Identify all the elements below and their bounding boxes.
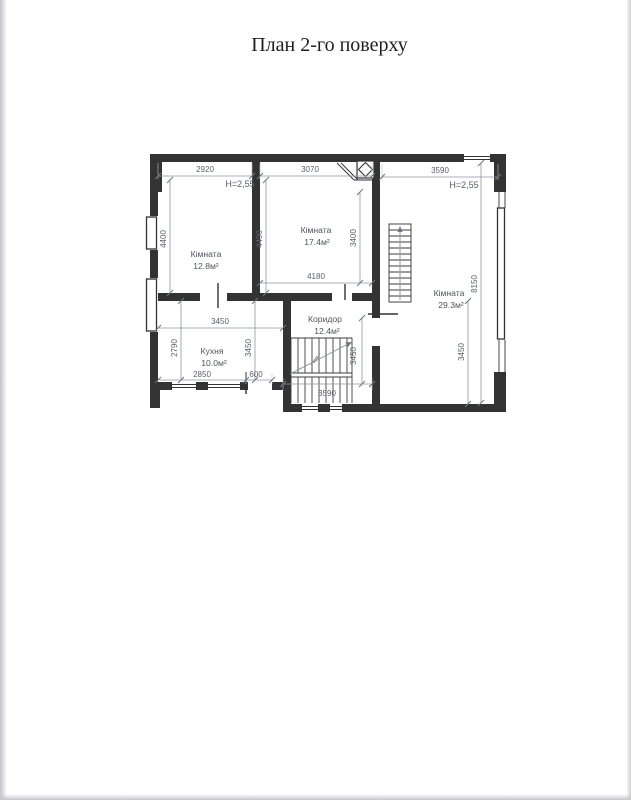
dim-stairs-width-bottom: 3590 — [318, 389, 336, 398]
dim-room1-top: 2920 — [196, 165, 214, 174]
column — [318, 404, 330, 412]
corner-top-right — [494, 154, 506, 192]
corridor-name-label: Коридор — [308, 314, 342, 324]
room1-name-label: Кімната — [191, 249, 222, 259]
dim-kitchen-width-bottom: 2850 — [193, 370, 211, 379]
corner-bottom-left — [150, 390, 160, 408]
photo-edge-right — [626, 0, 631, 800]
dim-kitchen-door-width: 600 — [249, 370, 263, 379]
dim-kitchen-height: 2790 — [170, 339, 179, 357]
stairs-ladder-room3 — [389, 224, 411, 302]
dim-corridor-height: 3450 — [457, 343, 466, 361]
dim-kitchen-inner-height: 3450 — [244, 339, 253, 357]
kitchen-area-label: 10.0м² — [201, 358, 227, 368]
room2-name-label: Кімната — [301, 225, 332, 235]
dim-stairs-height: 3450 — [349, 347, 358, 365]
kitchen-name-label: Кухня — [201, 346, 224, 356]
window-right — [498, 208, 505, 339]
window-left-1 — [147, 217, 157, 249]
room3-name-label: Кімната — [434, 288, 465, 298]
room3-area-label: 29.3м² — [438, 300, 464, 310]
window-top — [464, 154, 490, 162]
dim-room3-height: 8150 — [470, 275, 479, 293]
height-label-left: H=2,55 — [225, 179, 254, 189]
stair-walk-line — [290, 342, 352, 374]
dim-room2-height: 4400 — [255, 230, 264, 248]
page-title: План 2-го поверху — [28, 34, 631, 57]
column — [196, 382, 208, 390]
dim-room2-top: 3070 — [301, 165, 319, 174]
floor-plan-drawing: 2920 3070 3590 H=2,55 H=2,55 4400 4400 3… — [140, 140, 520, 425]
window-left-2 — [147, 279, 157, 331]
dim-room3-top: 3590 — [431, 166, 449, 175]
photo-edge-bottom — [0, 794, 631, 800]
photo-edge-left — [0, 0, 7, 800]
corridor-area-label: 12.4м² — [314, 326, 340, 336]
photo-page: План 2-го поверху — [0, 0, 631, 800]
room2-area-label: 17.4м² — [304, 237, 330, 247]
dim-room2-width-bottom: 4180 — [307, 272, 325, 281]
chimney-icon — [337, 161, 374, 180]
dim-room1-height: 4400 — [159, 230, 168, 248]
height-label-right: H=2,55 — [449, 180, 478, 190]
dim-room2-inner-height: 3400 — [349, 229, 358, 247]
room1-area-label: 12.8м² — [193, 261, 219, 271]
dim-kitchen-width-top: 3450 — [211, 317, 229, 326]
